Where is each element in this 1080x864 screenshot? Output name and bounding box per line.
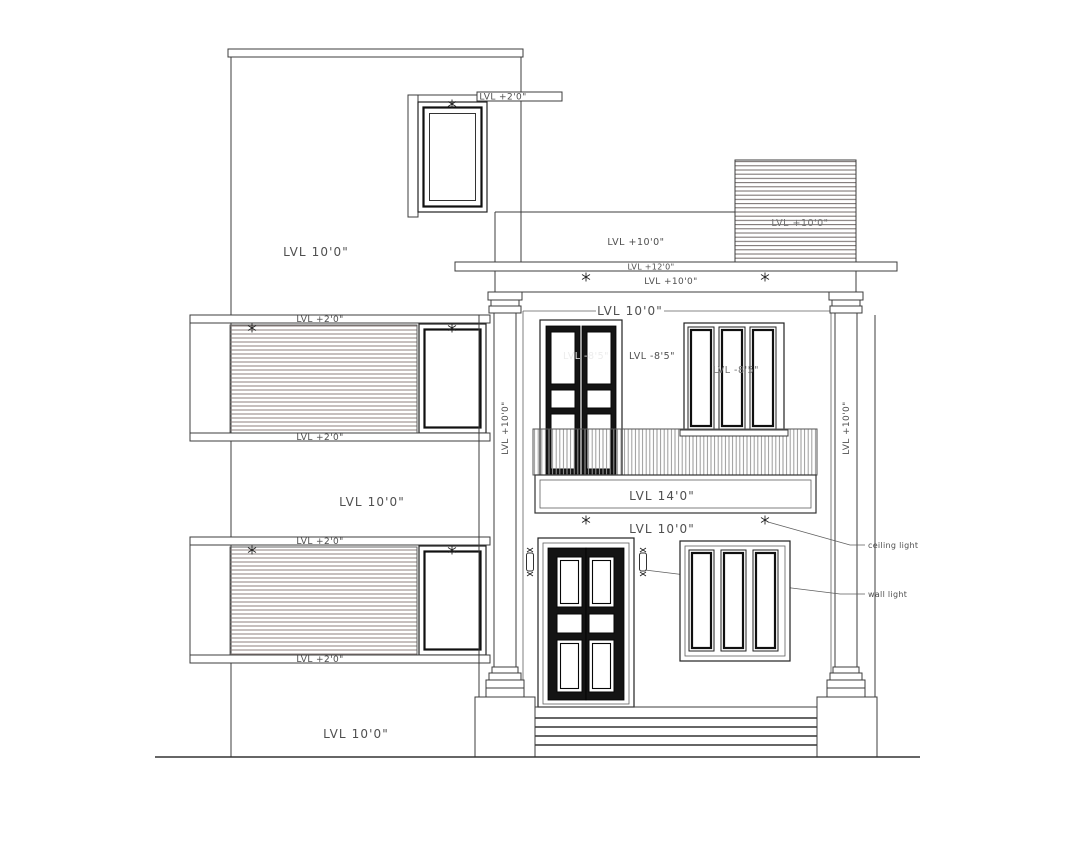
bedroom-window-upper: LVL +2'0" LVL +2'0" <box>190 315 490 443</box>
annotation-label: ceiling light <box>868 541 918 550</box>
capital-molding <box>489 306 521 313</box>
level-label: LVL +2'0" <box>296 655 343 665</box>
level-label: LVL 10'0" <box>283 245 349 259</box>
door-panel <box>589 614 614 633</box>
base-molding <box>486 688 524 697</box>
elevation-drawing-canvas: LVL 10'0" LVL 10'0" LVL 10'0" LVL +2'0" … <box>0 0 1080 864</box>
level-label: LVL 10'0" <box>629 522 695 536</box>
window-frame-outer <box>418 102 487 212</box>
level-label: LVL -8'5" <box>563 351 609 362</box>
wall-light-symbol-icon <box>527 548 534 576</box>
parapet-cap <box>228 49 523 57</box>
capital-molding <box>832 300 860 306</box>
ceiling-light-symbol-icon <box>761 273 769 282</box>
window-sill <box>680 430 788 436</box>
door-panel <box>551 390 575 408</box>
level-label: LVL -8'5" <box>629 351 675 362</box>
base-molding <box>492 667 518 673</box>
main-door <box>538 538 634 707</box>
column-pedestal <box>817 697 877 757</box>
level-label: LVL +2'0" <box>296 315 343 325</box>
level-label: LVL 14'0" <box>629 489 695 503</box>
capital-molding <box>488 292 522 300</box>
level-label: LVL +10'0" <box>771 218 828 229</box>
louver-hatch-panel <box>230 547 417 655</box>
base-molding <box>830 673 862 680</box>
level-label-vertical: LVL +10'0" <box>842 401 852 454</box>
base-molding <box>827 688 865 697</box>
ceiling-light-symbol-icon <box>582 516 590 525</box>
ceiling-light-symbol-icon <box>582 273 590 282</box>
capital-molding <box>491 300 519 306</box>
column-shaft <box>494 313 516 667</box>
balcony-slab: LVL 14'0" <box>535 475 816 513</box>
front-elevation-svg: LVL 10'0" LVL 10'0" LVL 10'0" LVL +2'0" … <box>0 0 1080 864</box>
level-label: LVL 10'0" <box>597 304 663 318</box>
column-shaft <box>835 313 857 667</box>
capital-molding <box>829 292 863 300</box>
plinth-steps <box>535 707 817 757</box>
base-molding <box>833 667 859 673</box>
column-pedestal <box>475 697 535 757</box>
level-label: LVL +2'0" <box>296 537 343 547</box>
window-frame-outer <box>419 546 486 655</box>
door-panel <box>557 614 582 633</box>
ceiling-light-symbol-icon <box>761 516 769 525</box>
balcony-window: LVL -8'5" <box>684 323 784 433</box>
base-molding <box>489 673 521 680</box>
louver-hatch-panel <box>230 325 417 433</box>
wall-light-symbol-icon <box>640 548 647 576</box>
level-label: LVL +12'0" <box>628 263 675 272</box>
capital-molding <box>830 306 862 313</box>
window-frame-outer <box>419 324 486 433</box>
base-molding <box>827 680 865 688</box>
level-label: LVL +2'0" <box>296 433 343 443</box>
level-label: LVL 10'0" <box>323 727 389 741</box>
level-label: LVL 10'0" <box>339 495 405 509</box>
annotation-label: wall light <box>868 590 907 599</box>
overhead-structure-hatch <box>735 160 856 262</box>
bedroom-window-lower: LVL +2'0" LVL +2'0" <box>190 537 490 665</box>
ground-window <box>680 541 790 661</box>
level-label: LVL -8'5" <box>713 365 759 376</box>
level-label: LVL +10'0" <box>644 277 697 287</box>
roof-slab-band <box>455 262 897 271</box>
level-label: LVL +2'0" <box>479 93 526 103</box>
window-jamb <box>408 95 418 217</box>
stair-window: LVL +2'0" <box>408 92 562 217</box>
column-right: LVL +10'0" <box>817 292 877 757</box>
level-label: LVL +10'0" <box>607 237 664 248</box>
door-panel <box>587 390 611 408</box>
base-molding <box>486 680 524 688</box>
level-label-vertical: LVL +10'0" <box>501 401 511 454</box>
